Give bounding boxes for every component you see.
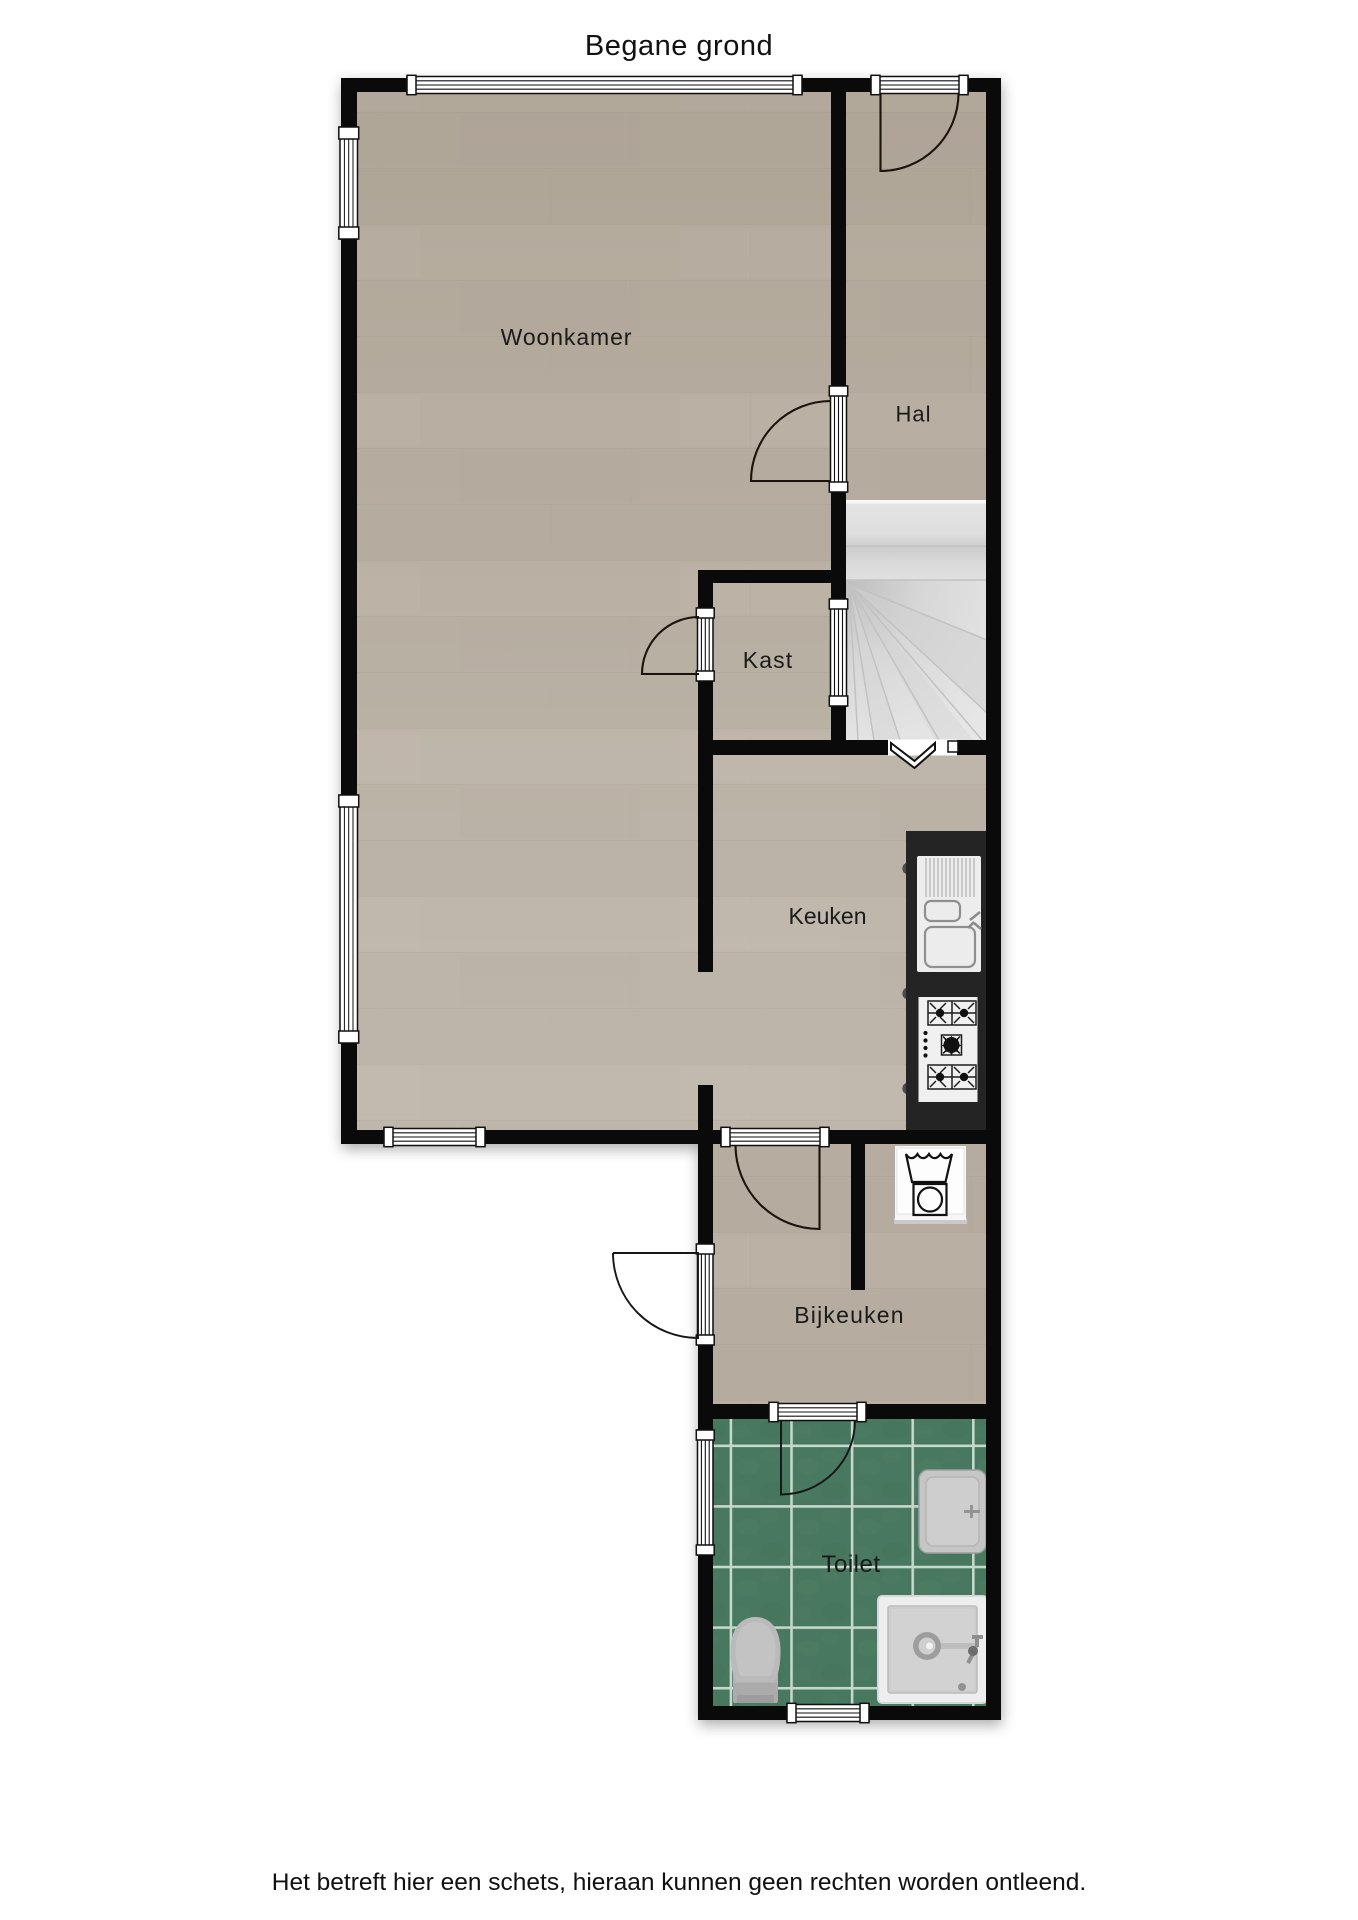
svg-text:Kast: Kast xyxy=(743,647,793,673)
svg-text:Begane grond: Begane grond xyxy=(585,30,773,62)
svg-text:Het betreft hier een schets, h: Het betreft hier een schets, hieraan kun… xyxy=(272,1869,1087,1896)
svg-text:Bijkeuken: Bijkeuken xyxy=(794,1302,905,1328)
svg-text:Toilet: Toilet xyxy=(821,1551,880,1578)
svg-text:Keuken: Keuken xyxy=(788,903,866,929)
svg-text:Hal: Hal xyxy=(895,402,931,427)
svg-text:Woonkamer: Woonkamer xyxy=(501,324,633,350)
